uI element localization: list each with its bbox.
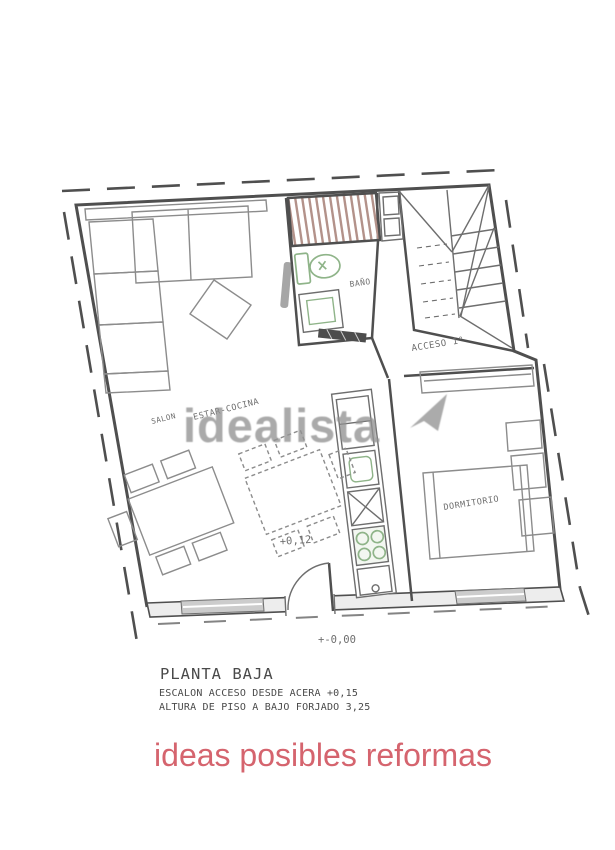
radiator xyxy=(280,262,292,309)
level-entrance: +-0,00 xyxy=(318,634,356,646)
living-label-salon: SALON xyxy=(150,411,177,426)
bedroom-furniture xyxy=(420,365,554,559)
nightstand-1 xyxy=(506,420,542,451)
staircase xyxy=(399,185,512,348)
floor-plan-image: BAÑO ACCESO 1° DORMITORIO SALON ESTAR-CO… xyxy=(0,0,615,850)
coffee-table xyxy=(190,280,251,339)
door-opening xyxy=(285,594,335,616)
watermark-text: idealista xyxy=(183,399,380,452)
plan-note-2: ALTURA DE PISO A BAJO FORJADO 3,25 xyxy=(159,702,371,713)
level-interior: +0,12 xyxy=(279,534,311,548)
page: { "colors": { "line": "#4f4f4f", "line-m… xyxy=(0,0,615,850)
hob xyxy=(352,526,388,566)
window-left xyxy=(181,598,264,614)
bed xyxy=(423,465,534,559)
watermark: idealista xyxy=(183,394,447,452)
shower-tray xyxy=(299,290,343,333)
plan-note-1: ESCALON ACCESO DESDE ACERA +0,15 xyxy=(159,688,358,699)
window-right xyxy=(455,588,526,604)
title-block: PLANTA BAJA ESCALON ACCESO DESDE ACERA +… xyxy=(159,665,371,713)
shower-terrace xyxy=(287,190,380,250)
plan-title: PLANTA BAJA xyxy=(160,665,274,683)
watermark-logo-icon xyxy=(410,394,447,431)
sofa-left xyxy=(89,219,170,393)
bathroom-label: BAÑO xyxy=(349,276,371,289)
caption-text: ideas posibles reformas xyxy=(154,737,492,773)
stairs-label: ACCESO 1° xyxy=(411,336,465,354)
bedroom-label: DORMITORIO xyxy=(443,494,500,513)
toilet xyxy=(295,250,342,284)
living-furniture xyxy=(85,200,267,393)
dining-table xyxy=(95,444,242,585)
